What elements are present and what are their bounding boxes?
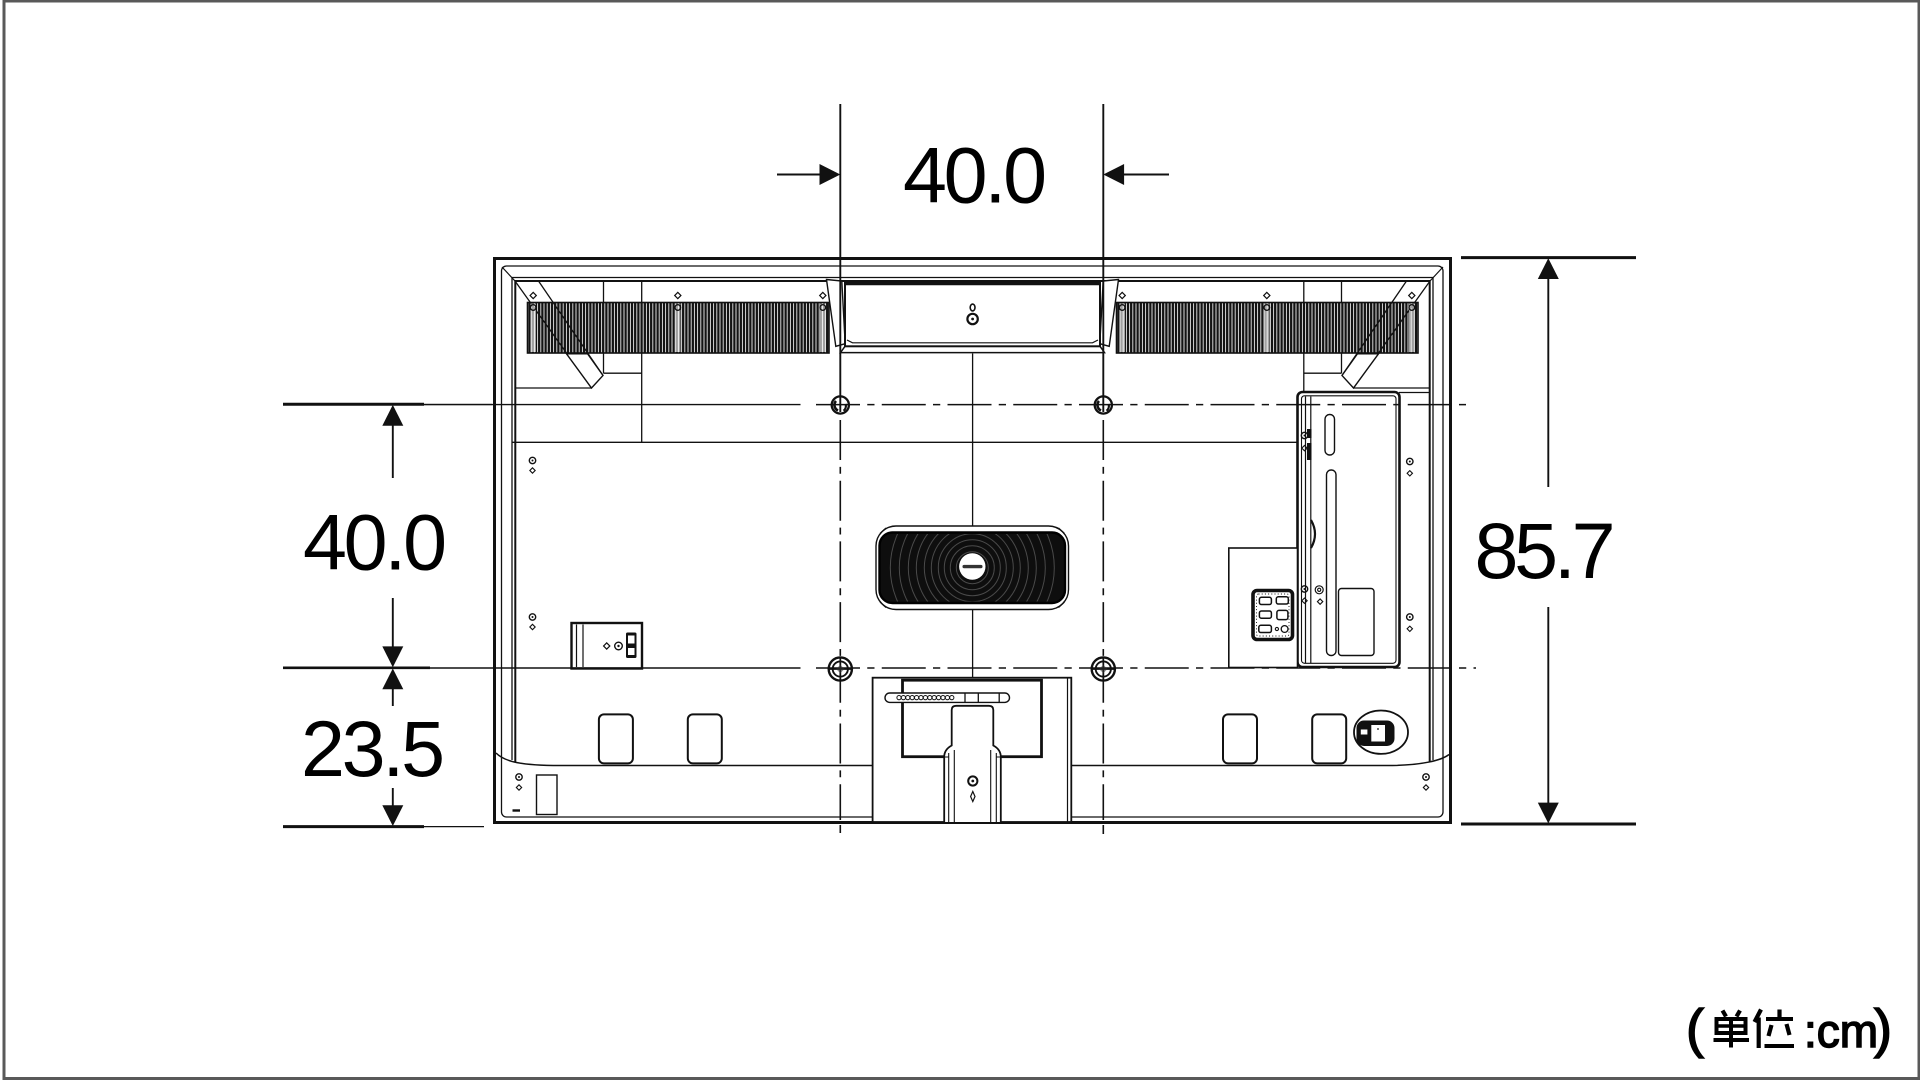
svg-text::cm: :cm bbox=[1804, 1005, 1878, 1057]
svg-text:40.0: 40.0 bbox=[903, 131, 1047, 220]
svg-text:): ) bbox=[1874, 999, 1892, 1059]
svg-text:40.0: 40.0 bbox=[303, 498, 447, 587]
svg-text:23.5: 23.5 bbox=[301, 704, 445, 793]
svg-text:85.7: 85.7 bbox=[1475, 506, 1616, 595]
svg-text:(: ( bbox=[1686, 999, 1704, 1059]
